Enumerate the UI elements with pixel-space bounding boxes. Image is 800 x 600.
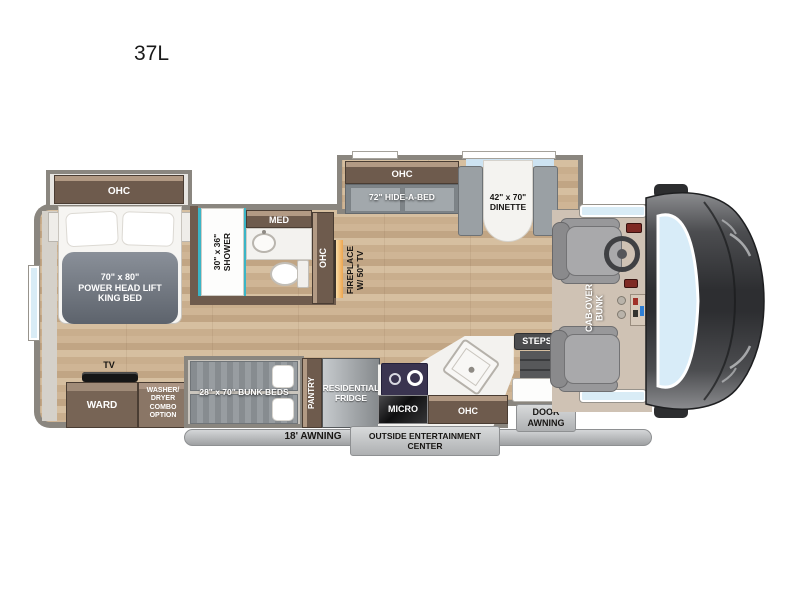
med-cabinet: MED (246, 210, 312, 228)
kitchen-ohc-label: OHC (458, 402, 478, 417)
king-bed-blanket: 70" x 80" POWER HEAD LIFT KING BED (62, 252, 178, 324)
micro-label: MICRO (388, 404, 418, 415)
toilet-bowl (270, 262, 300, 286)
bedroom-ohc-cabinet: OHC (54, 175, 184, 204)
cab-over-bunk-label-box: CAB-OVER BUNK (582, 268, 608, 348)
front-cap (638, 184, 768, 418)
floorplan-canvas: 37L 18' AWNING OHC 70" x 80" POWER HEAD … (0, 0, 800, 600)
bath-sink (252, 233, 276, 253)
fridge: RESIDENTIAL FRIDGE (322, 358, 380, 428)
bunk-pillow-bottom (272, 398, 294, 421)
outside-entertainment-box: OUTSIDE ENTERTAINMENT CENTER (350, 426, 500, 456)
bath-ohc-label: OHC (318, 248, 329, 268)
slideout-window-right (462, 151, 556, 159)
tv-label: TV (92, 360, 126, 371)
wall-bed-bath (190, 206, 198, 305)
sofa-ohc-cabinet: OHC (345, 161, 459, 184)
med-label: MED (269, 212, 289, 226)
pantry-label: PANTRY (307, 377, 316, 409)
bunk-label: 28" x 70" BUNK BEDS (186, 387, 302, 397)
ward-label: WARD (66, 400, 138, 412)
toilet-tank (297, 260, 309, 288)
king-bed-label: 70" x 80" POWER HEAD LIFT KING BED (78, 272, 162, 304)
burner-small (389, 373, 401, 385)
cooktop (381, 363, 428, 396)
burner-large (407, 370, 423, 386)
bed-pillow-right (121, 211, 174, 247)
steps-label: STEPS (522, 336, 552, 347)
cab-over-bunk-label: CAB-OVER BUNK (584, 284, 605, 332)
washer-dryer-label: WASHER/ DRYER COMBO OPTION (138, 387, 188, 420)
bunk-pillow-top (272, 365, 294, 388)
fireplace-label-box: FIREPLACE W/ 50" TV (343, 228, 367, 312)
tv-unit (82, 372, 138, 382)
bedroom-ohc-label: OHC (108, 182, 130, 198)
fireplace-label: FIREPLACE W/ 50" TV (345, 246, 365, 294)
pantry-cabinet: PANTRY (302, 358, 322, 428)
bunk-bed-bottom (190, 394, 298, 424)
fireplace (334, 240, 343, 298)
microwave: MICRO (378, 395, 428, 424)
bath-faucet (262, 230, 266, 234)
dinette-label: 42" x 70" DINETTE (470, 192, 546, 212)
rear-wall-interior (42, 211, 57, 421)
shower-label: 30" x 36" SHOWER (212, 233, 232, 271)
hide-a-bed-label: 72" HIDE-A-BED (345, 192, 459, 202)
entry-steps (520, 351, 550, 378)
shower: 30" x 36" SHOWER (198, 208, 246, 296)
cab-window-top (580, 205, 646, 217)
kitchen-ohc-cabinet: OHC (428, 395, 508, 424)
bed-pillow-left (65, 211, 119, 248)
rear-window (29, 266, 39, 340)
fridge-label: RESIDENTIAL FRIDGE (323, 383, 380, 403)
slideout-window-left (352, 151, 398, 159)
sofa-ohc-label: OHC (391, 165, 412, 180)
bath-ohc-cabinet: OHC (312, 212, 334, 304)
model-label: 37L (134, 42, 169, 66)
outside-entertainment-label: OUTSIDE ENTERTAINMENT CENTER (369, 431, 481, 451)
